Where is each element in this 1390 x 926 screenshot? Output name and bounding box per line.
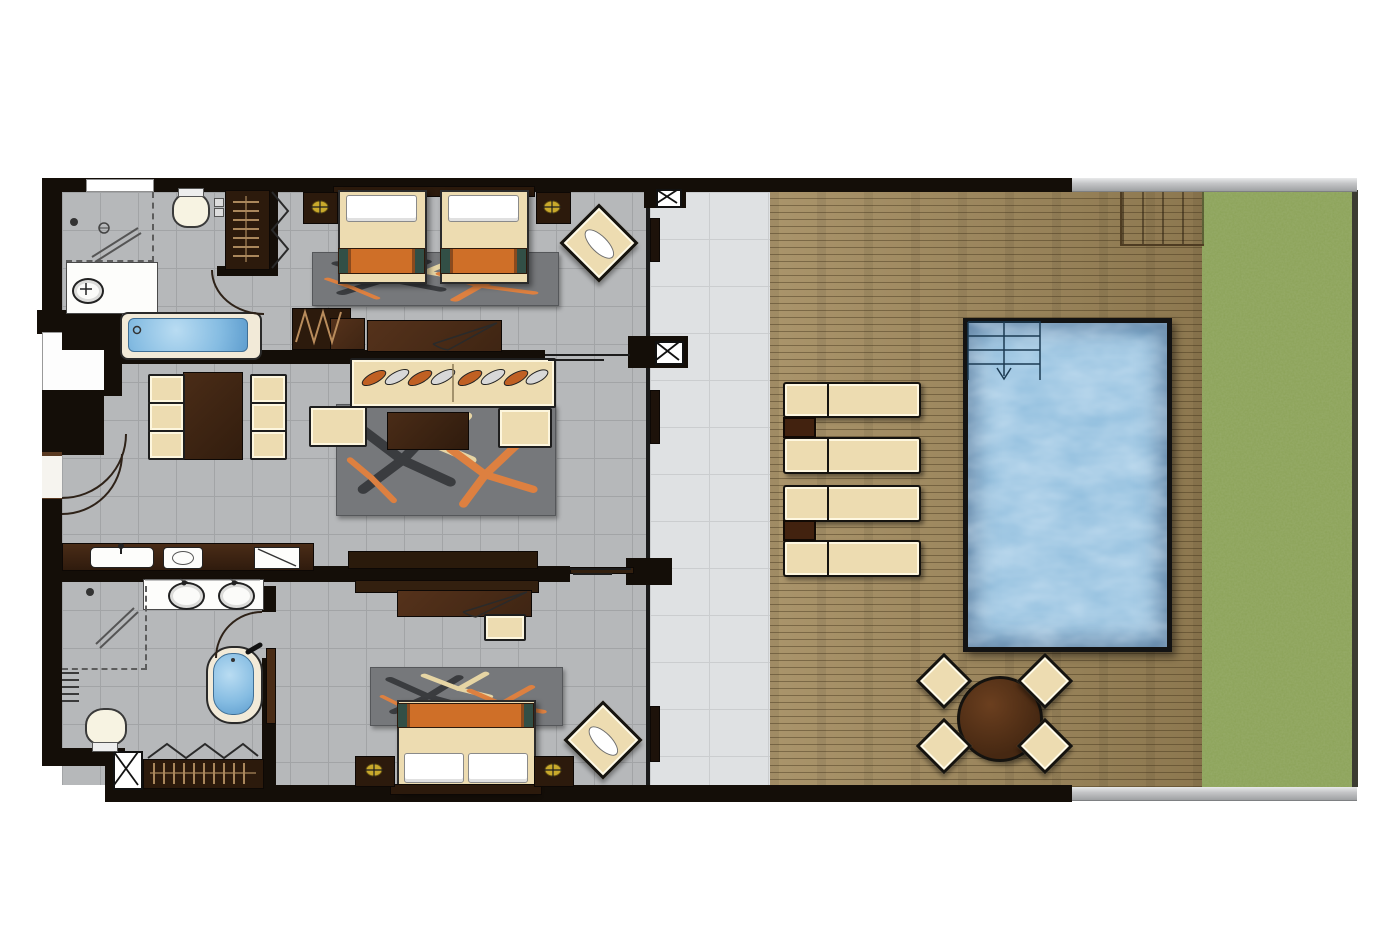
faucets (80, 283, 260, 662)
pool-steps (968, 322, 1040, 380)
closet-2-bifold (148, 744, 258, 758)
sliding-tracks (545, 355, 631, 574)
bathroom-2-door-arc (216, 612, 262, 658)
bathtub-2-faucet (248, 645, 260, 652)
door-arcs (62, 270, 264, 658)
luggage-bench-straps (296, 312, 341, 342)
wardrobe-1-hangers (233, 196, 259, 262)
desk-chair-fans (433, 323, 527, 617)
closet-2-hangers (150, 763, 256, 784)
shower-fittings (70, 218, 141, 648)
bifold-doors (148, 192, 288, 758)
bathroom-1-door-arc (212, 270, 264, 314)
bedside-lamps (311, 200, 562, 777)
entry-door-arc-2 (62, 454, 122, 514)
shower-1-head-icon (70, 218, 78, 226)
bathtub-1-drain (134, 327, 141, 334)
column-x-marks (114, 190, 679, 785)
counter-tray-diagonal (258, 549, 296, 566)
wardrobe-1-bifold (272, 192, 288, 268)
shower-2-head-icon (86, 588, 94, 596)
linework-overlay (0, 0, 1390, 926)
entry-door-arc-1 (62, 434, 126, 498)
floor-plan (0, 0, 1390, 926)
